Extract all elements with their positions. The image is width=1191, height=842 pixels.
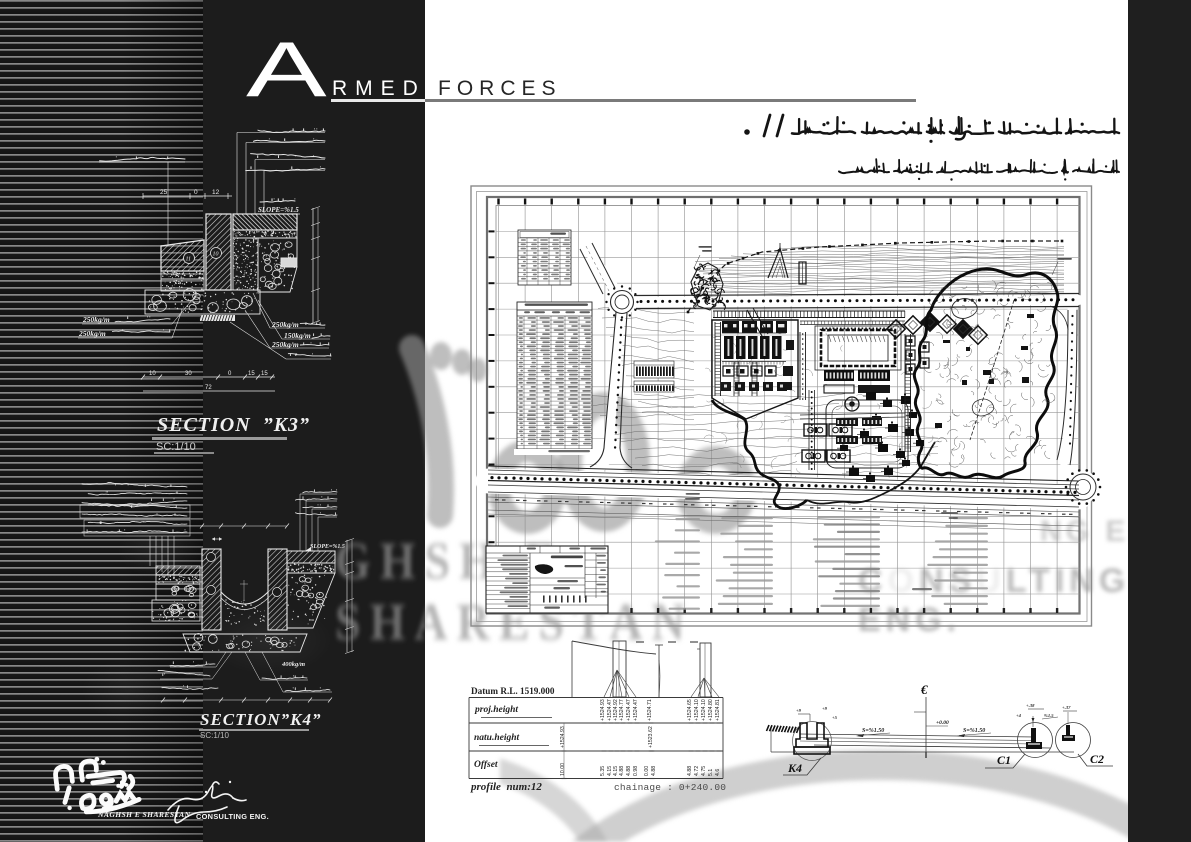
svg-text:15: 15 (261, 371, 268, 377)
svg-text:0.98: 0.98 (633, 766, 639, 776)
svg-text:CONSULTING ENG.: CONSULTING ENG. (196, 812, 269, 821)
svg-text:4.88: 4.88 (651, 766, 657, 776)
svg-text:S=%1.50: S=%1.50 (963, 728, 985, 734)
svg-text:4.88: 4.88 (619, 766, 625, 776)
svg-text:4.72: 4.72 (694, 766, 700, 776)
svg-text:€: € (920, 682, 928, 697)
svg-text:5.35: 5.35 (600, 766, 606, 776)
svg-text:+1523.62: +1523.62 (648, 726, 654, 748)
svg-text:chainage : 0+240.00: chainage : 0+240.00 (614, 782, 726, 793)
svg-text:natu.height: natu.height (474, 733, 520, 743)
svg-text:250kg/m: 250kg/m (271, 340, 299, 349)
svg-text:12: 12 (212, 189, 220, 196)
svg-text:15: 15 (248, 371, 255, 377)
svg-text:10.00: 10.00 (560, 763, 566, 776)
svg-text:Offset: Offset (474, 760, 498, 770)
svg-text:+1524.93: +1524.93 (560, 726, 566, 748)
svg-text:+0.00: +0.00 (936, 720, 949, 726)
svg-text:+9: +9 (796, 708, 802, 713)
svg-text:250kg/m: 250kg/m (82, 315, 110, 324)
svg-text:+1524.10: +1524.10 (701, 699, 707, 721)
svg-text:150kg/m: 150kg/m (284, 331, 311, 340)
svg-text:SLOPE=%1.5: SLOPE=%1.5 (258, 206, 299, 214)
svg-text:K4: K4 (787, 761, 802, 775)
svg-text:%1.5: %1.5 (1044, 713, 1054, 718)
svg-text:+.38: +.38 (1026, 703, 1035, 708)
svg-text:+9: +9 (822, 706, 828, 711)
svg-text:5.1: 5.1 (708, 769, 714, 776)
svg-text:4.6: 4.6 (715, 769, 721, 776)
svg-text:11: 11 (186, 257, 192, 263)
svg-text:+5: +5 (832, 715, 838, 720)
svg-text:250kg/m: 250kg/m (78, 329, 106, 338)
svg-text:profile num:12: profile num:12 (470, 781, 542, 793)
svg-text:+1524.47: +1524.47 (626, 699, 632, 721)
svg-text:4.75: 4.75 (701, 766, 707, 776)
svg-text:+1524.10: +1524.10 (694, 699, 700, 721)
svg-text:S=%1.50: S=%1.50 (862, 728, 884, 734)
svg-text:4.88: 4.88 (687, 766, 693, 776)
svg-text:4.88: 4.88 (626, 766, 632, 776)
svg-text:25: 25 (160, 189, 168, 196)
svg-text:Datum R.L. 1519.000: Datum R.L. 1519.000 (471, 686, 555, 696)
svg-text:10: 10 (149, 371, 156, 377)
svg-text:+.37: +.37 (1062, 705, 1071, 710)
svg-text:+1524.47: +1524.47 (633, 699, 639, 721)
svg-text:+1524.71: +1524.71 (647, 699, 653, 721)
svg-text:+1524.81: +1524.81 (715, 699, 721, 721)
svg-text:10: 10 (213, 252, 219, 258)
svg-text:0: 0 (194, 189, 198, 196)
svg-text:+4: +4 (1016, 713, 1022, 718)
svg-text:30: 30 (185, 371, 192, 377)
svg-text:400kg/m: 400kg/m (281, 661, 305, 668)
svg-text:+1524.65: +1524.65 (687, 699, 693, 721)
svg-text:C2: C2 (1090, 752, 1104, 766)
svg-text:+1524.93: +1524.93 (600, 699, 606, 721)
svg-text:72: 72 (205, 385, 212, 391)
svg-text:proj.height: proj.height (474, 705, 518, 715)
svg-text:+1524.80: +1524.80 (708, 699, 714, 721)
svg-text:0: 0 (228, 371, 232, 377)
svg-text:+1524.77: +1524.77 (619, 699, 625, 721)
svg-text:C1: C1 (997, 753, 1011, 767)
svg-text:0.00: 0.00 (644, 766, 650, 776)
